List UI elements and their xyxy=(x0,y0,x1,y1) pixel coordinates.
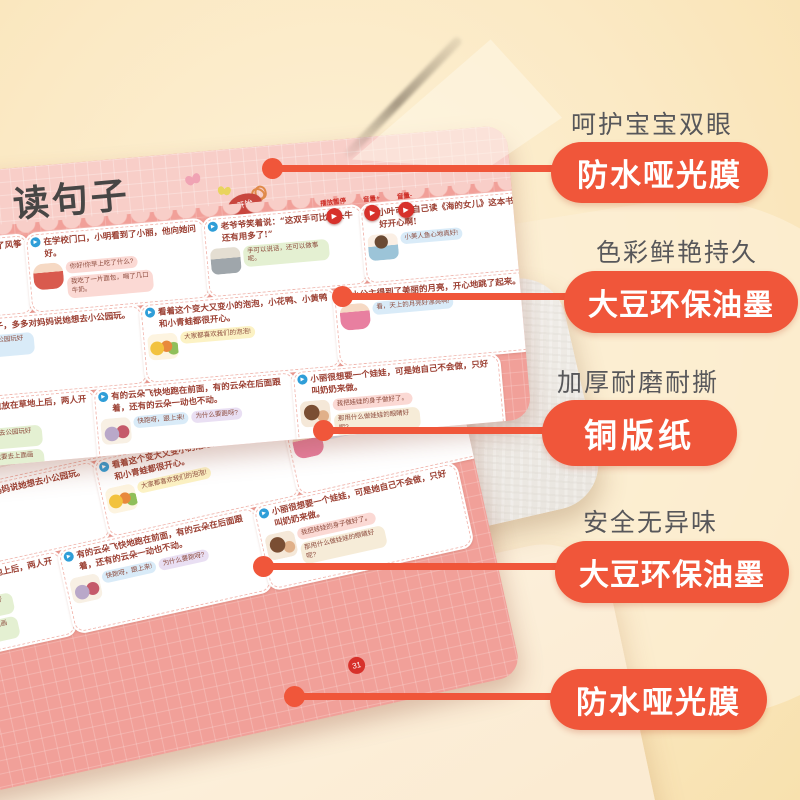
audio-play-icon: ▶ xyxy=(145,307,156,318)
callout-pill: 防水哑光膜 xyxy=(550,669,767,730)
volume-down-control: 音量- ▶ xyxy=(396,189,414,218)
audio-play-icon: ▶ xyxy=(63,551,75,563)
speech-bubble: 快跑呀，跟上来! xyxy=(133,411,189,429)
volume-up-icon: ▶ xyxy=(364,204,381,221)
granny-illustration xyxy=(264,529,299,561)
callout-line xyxy=(323,427,553,434)
volume-up-control: 音量+ ▶ xyxy=(362,192,381,221)
page-title: 读句子 xyxy=(11,166,132,228)
page-number-badge: 31 xyxy=(346,655,366,675)
callout-pill: 铜版纸 xyxy=(542,400,737,466)
mom-illustration xyxy=(367,232,399,261)
butterfly-icon xyxy=(217,186,231,196)
product-layers-showcase: ▶ 两个孩子开心地放起了风筝来。 风筝飞得真高呀! ▶ 在学校门口，小明看到了小… xyxy=(0,0,800,800)
callout-line xyxy=(294,693,560,700)
speech-bubble: 不行，明天我要去上面画画。 xyxy=(0,616,21,656)
play-pause-control: 播放暂停 ▶ xyxy=(320,195,348,225)
callout-dot xyxy=(332,286,353,307)
callout-line xyxy=(263,563,563,570)
card-bottom: 风筝飞得真高呀! xyxy=(0,265,27,301)
farmer-illustration xyxy=(210,246,242,275)
callout-pill: 防水哑光膜 xyxy=(551,142,768,203)
play-pause-icon: ▶ xyxy=(326,207,343,224)
speech-bubbles: 小美人鱼心地真好! xyxy=(400,227,463,245)
callout-dot xyxy=(284,686,305,707)
speech-bubbles: 妈，你带我去小公园玩好吗? xyxy=(0,332,35,361)
audio-play-icon: ▶ xyxy=(30,237,41,248)
audio-play-icon: ▶ xyxy=(207,221,218,232)
card-bottom: 明天我们一起去公园玩好吗?不行，明天我要去上面画画。 xyxy=(0,581,71,663)
callout-label: 安全无异味 xyxy=(583,503,718,539)
callout-dot xyxy=(262,158,283,179)
speech-bubble: 为什么要跑呀? xyxy=(191,407,243,424)
callout-label: 色彩鲜艳持久 xyxy=(596,233,758,269)
callout-line xyxy=(342,293,574,300)
callout-pill: 大豆环保油墨 xyxy=(564,271,798,333)
callout-dot xyxy=(313,420,334,441)
audio-play-icon: ▶ xyxy=(98,461,110,473)
audio-play-icon: ▶ xyxy=(98,392,109,403)
film-corner-gloss xyxy=(352,34,562,169)
butterfly-icon xyxy=(184,172,202,187)
callout-label: 呵护宝宝双眼 xyxy=(571,105,733,141)
volume-down-icon: ▶ xyxy=(397,201,414,218)
callout-pill: 大豆环保油墨 xyxy=(555,541,789,603)
callout-dot xyxy=(253,556,274,577)
speech-bubble: 我吃了一片面包，喝了几口牛奶。 xyxy=(67,270,155,299)
girl-illustration xyxy=(32,262,64,291)
sentence-card: ▶ 小公主得到了美丽的月亮，开心地跳了起来。 看，天上的月亮好漂亮啊! xyxy=(331,269,531,368)
ducks-illustration xyxy=(104,483,139,515)
mice-illustration xyxy=(100,416,132,445)
ducks-illustration xyxy=(147,332,179,361)
audio-play-icon: ▶ xyxy=(258,507,270,519)
princess-illustration xyxy=(339,303,371,332)
callout-line xyxy=(272,165,564,172)
audio-play-icon: ▶ xyxy=(297,374,308,385)
callout-label: 加厚耐磨耐撕 xyxy=(557,363,719,399)
speech-bubble: 小美人鱼心地真好! xyxy=(400,227,463,245)
speech-bubble: 妈，你带我去小公园玩好吗? xyxy=(0,332,35,361)
speech-bubbles: 明天我们一起去公园玩好吗?不行，明天我要去上面画画。 xyxy=(0,581,71,656)
mice-illustration xyxy=(69,572,104,604)
